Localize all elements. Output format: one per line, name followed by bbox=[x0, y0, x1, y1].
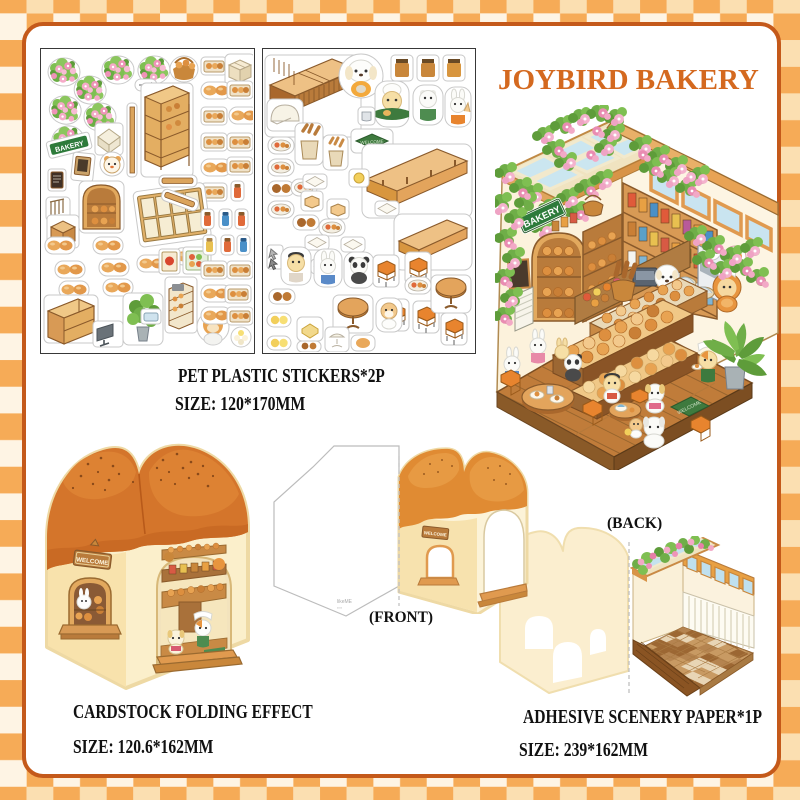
svg-text:likeME: likeME bbox=[337, 599, 353, 605]
svg-text:▪▪▪▪: ▪▪▪▪ bbox=[337, 606, 342, 610]
